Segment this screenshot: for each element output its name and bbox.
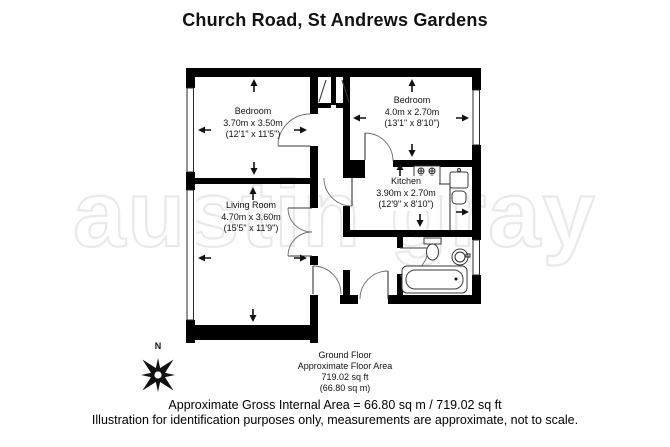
room-size-metric: 4.0m x 2.70m <box>384 107 439 119</box>
room-size-metric: 3.90m x 2.70m <box>376 188 436 200</box>
compass-rose-icon: N <box>130 338 186 405</box>
window-bathroom <box>471 240 483 275</box>
basin-icon <box>452 249 470 265</box>
room-size-imperial: (12'1" x 11'5") <box>223 129 283 141</box>
floor-summary: Ground Floor Approximate Floor Area 719.… <box>245 350 445 394</box>
floor-area-label: Approximate Floor Area <box>245 361 445 372</box>
room-size-imperial: (13'1" x 8'10") <box>384 118 439 130</box>
room-size-metric: 3.70m x 3.50m <box>223 118 283 130</box>
room-name: Bedroom <box>223 106 283 118</box>
floor-area-sqft: 719.02 sq ft <box>245 372 445 383</box>
room-size-imperial: (12'9" x 8'10") <box>376 199 436 211</box>
room-name: Kitchen <box>376 176 436 188</box>
door-bedroom-right <box>365 133 393 161</box>
door-living-rear <box>313 266 341 294</box>
room-size-metric: 4.70m x 3.60m <box>221 212 281 224</box>
room-name: Bedroom <box>384 95 439 107</box>
floor-name: Ground Floor <box>245 350 445 361</box>
room-size-imperial: (15'5" x 11'9") <box>221 223 281 235</box>
footer-disclaimer: Illustration for identification purposes… <box>0 413 670 427</box>
room-name: Living Room <box>221 200 281 212</box>
room-label-kitchen: Kitchen 3.90m x 2.70m (12'9" x 8'10") <box>336 176 476 211</box>
front-door <box>360 271 388 299</box>
bathtub-icon <box>402 266 467 293</box>
room-label-bedroom-left: Bedroom 3.70m x 3.50m (12'1" x 11'5") <box>183 106 323 141</box>
floor-area-sqm: (66.80 sq m) <box>245 383 445 394</box>
floorplan-page: Church Road, St Andrews Gardens austin g… <box>0 0 670 447</box>
footer-gross-area: Approximate Gross Internal Area = 66.80 … <box>0 398 670 412</box>
compass-north-label: N <box>155 341 162 351</box>
room-label-living-room: Living Room 4.70m x 3.60m (15'5" x 11'9"… <box>181 200 321 235</box>
room-label-bedroom-right: Bedroom 4.0m x 2.70m (13'1" x 8'10") <box>342 95 482 130</box>
